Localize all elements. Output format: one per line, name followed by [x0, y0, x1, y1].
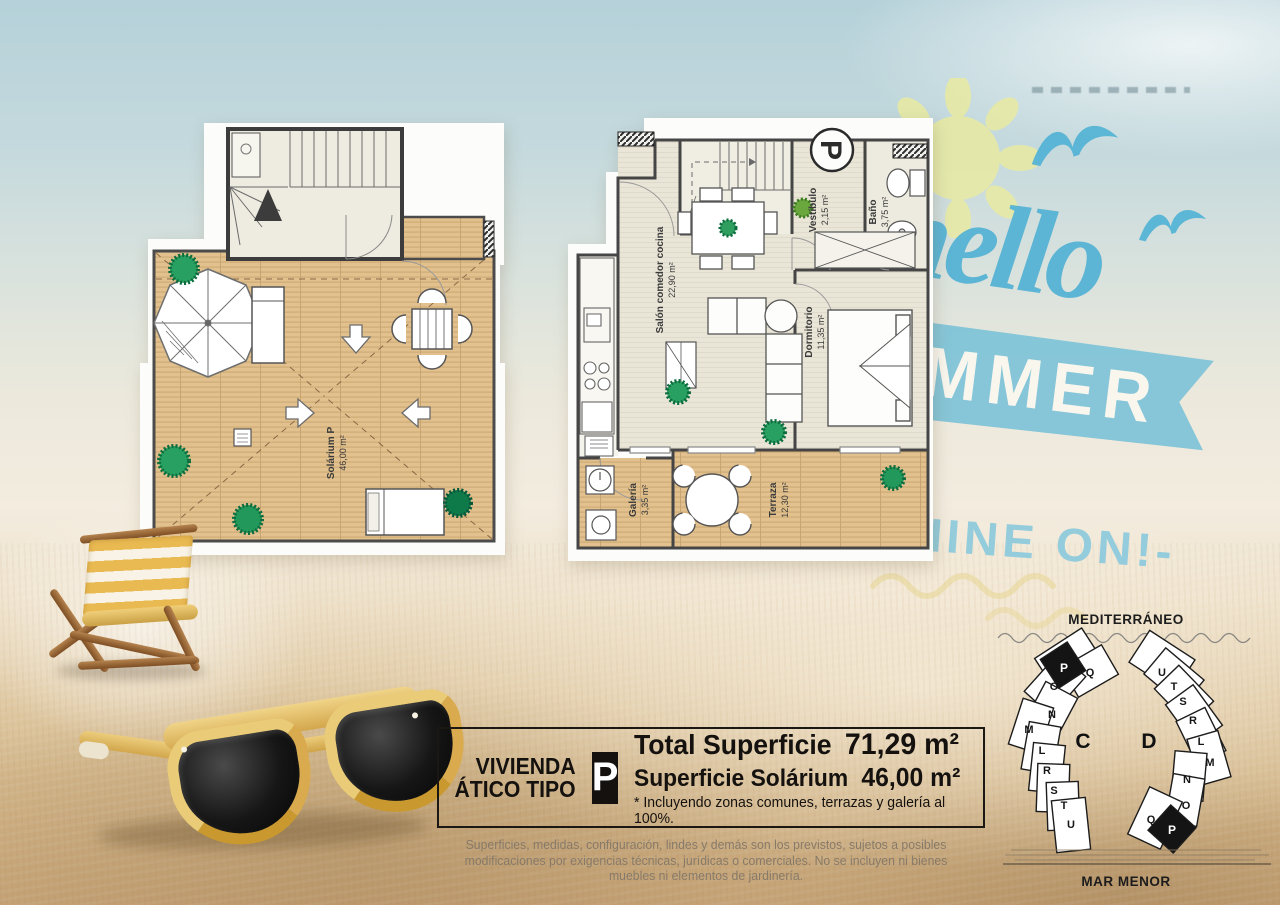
- room-area: 2,15 m²: [820, 195, 830, 226]
- unit-marker: L: [1039, 745, 1046, 757]
- umbrella-icon: [154, 269, 262, 377]
- sea-label-mar-menor: MAR MENOR: [1081, 874, 1170, 889]
- deck-corridor: [400, 217, 484, 259]
- sun-lounger: [366, 489, 444, 535]
- unit-marker: R: [1043, 765, 1051, 777]
- kitchen: [580, 258, 614, 456]
- total-surface-label: Total Superficie: [634, 730, 832, 760]
- plan-type-letter: P: [814, 140, 847, 160]
- bed: [828, 310, 912, 426]
- room-label: Galería: [628, 483, 639, 517]
- section-mark: [893, 144, 927, 158]
- room-area: 22,90 m²: [667, 262, 677, 298]
- unit-marker: N: [1048, 709, 1056, 721]
- room-label: Baño: [868, 200, 879, 225]
- unit-marker: U: [1158, 667, 1166, 679]
- unit-marker: T: [1171, 681, 1178, 693]
- sunglasses-photo: [75, 680, 437, 870]
- unit-marker: S: [1179, 696, 1186, 708]
- plan-type-badge: P: [811, 129, 853, 171]
- surface-note: * Incluyendo zonas comunes, terrazas y g…: [634, 795, 967, 827]
- faded-text-marks: [1032, 87, 1190, 93]
- solarium-area: 46,00 m²: [338, 435, 348, 471]
- building-d-label: D: [1141, 730, 1156, 753]
- room-label: Salón comedor cocina: [655, 226, 666, 333]
- unit-title-line1: VIVIENDA: [455, 755, 576, 778]
- section-mark: [618, 132, 654, 146]
- unit-marker: O: [1182, 800, 1191, 812]
- unit-title-line2: ÁTICO TIPO: [455, 778, 576, 801]
- floor-box: [234, 429, 251, 446]
- table-plant: [720, 220, 736, 236]
- closet: [815, 232, 915, 268]
- solarium-label: Solárium P: [326, 427, 337, 480]
- room-label: Vestíbulo: [808, 188, 819, 232]
- room-label: Terraza: [768, 482, 779, 517]
- closet: [232, 133, 260, 177]
- unit-marker: R: [1189, 715, 1197, 727]
- unit-summary-box: VIVIENDA ÁTICO TIPO P Total Superficie 7…: [437, 727, 985, 828]
- unit-type-badge: P: [592, 752, 619, 804]
- room-area: 3,35 m²: [640, 485, 650, 516]
- entry-mark: [484, 221, 494, 257]
- unit-marker: U: [1067, 819, 1075, 831]
- tv-unit: [666, 342, 696, 388]
- unit-marker: Q: [1147, 814, 1156, 826]
- room-area: 12,30 m²: [780, 482, 790, 518]
- shoreline-waves: [998, 634, 1250, 643]
- unit-marker: L: [1198, 736, 1205, 748]
- total-surface-value: 71,29 m²: [845, 728, 959, 762]
- building-c-label: C: [1075, 730, 1090, 753]
- solarium-surface-value: 46,00 m²: [862, 762, 961, 793]
- site-plan: MEDITERRÁNEO P Q O N M L R S T U C U T S…: [993, 596, 1280, 900]
- lounger: [252, 287, 284, 363]
- unit-marker: P: [1060, 661, 1068, 675]
- solarium-floorplan: Solárium P 46,00 m²: [140, 123, 505, 555]
- unit-title: VIVIENDA ÁTICO TIPO: [455, 755, 576, 801]
- shore-lines: [1003, 850, 1271, 864]
- deck-chair-photo: [50, 534, 212, 680]
- unit-marker: O: [1050, 681, 1059, 693]
- stair-block: [228, 129, 402, 259]
- seagull-icon: [1136, 194, 1210, 248]
- room-area: 11,35 m²: [816, 315, 826, 350]
- room-label: Dormitorio: [804, 306, 815, 357]
- unit-marker: N: [1183, 774, 1191, 786]
- unit-marker: M: [1205, 757, 1214, 769]
- unit-marker: T: [1061, 800, 1068, 812]
- legal-disclaimer: Superficies, medidas, configuración, lin…: [447, 838, 964, 885]
- solarium-surface-label: Superficie Solárium: [634, 766, 848, 792]
- unit-marker: P: [1168, 823, 1176, 837]
- apartment-floorplan: P: [560, 118, 935, 563]
- sea-label-mediterraneo: MEDITERRÁNEO: [1068, 612, 1184, 627]
- unit-marker: M: [1024, 724, 1033, 736]
- seagull-icon: [1028, 108, 1123, 172]
- room-area: 3,75 m²: [880, 197, 890, 228]
- unit-marker: Q: [1086, 667, 1095, 679]
- unit-marker: S: [1050, 785, 1057, 797]
